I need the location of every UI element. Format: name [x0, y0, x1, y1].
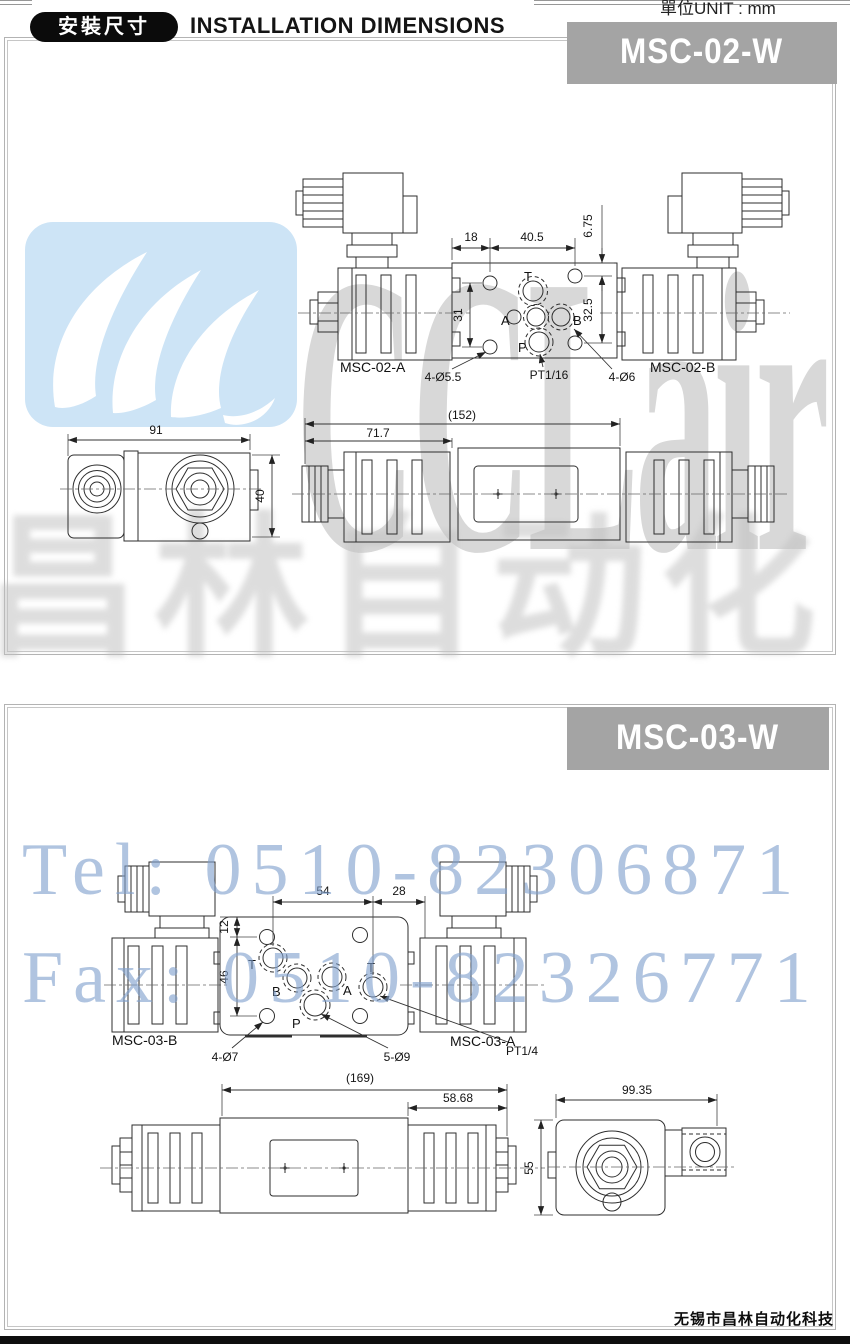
model-banner-text: MSC-02-W — [621, 22, 784, 82]
model-banner-msc-02-w: MSC-02-W — [567, 22, 837, 84]
page-title: INSTALLATION DIMENSIONS — [190, 13, 505, 39]
bottom-bar — [0, 1336, 850, 1344]
company-name: 无锡市昌林自动化科技 — [674, 1308, 834, 1329]
section-badge: 安裝尺寸 — [30, 12, 178, 42]
watermark-logo-square — [25, 222, 297, 427]
watermark-tel: Tel: 0510-82306871 — [22, 828, 803, 913]
unit-label: 單位UNIT : mm — [660, 0, 776, 19]
logo-swoosh-icon — [25, 222, 297, 427]
model-banner-text: MSC-03-W — [617, 707, 780, 768]
model-banner-msc-03-w: MSC-03-W — [567, 707, 829, 770]
page: 安裝尺寸 INSTALLATION DIMENSIONS 單位UNIT : mm… — [0, 0, 850, 1344]
watermark-fax: Fax: 0510-82326771 — [22, 936, 821, 1021]
watermark-chinese: 昌林自动化 — [0, 462, 830, 687]
header-rule-left — [0, 0, 32, 5]
